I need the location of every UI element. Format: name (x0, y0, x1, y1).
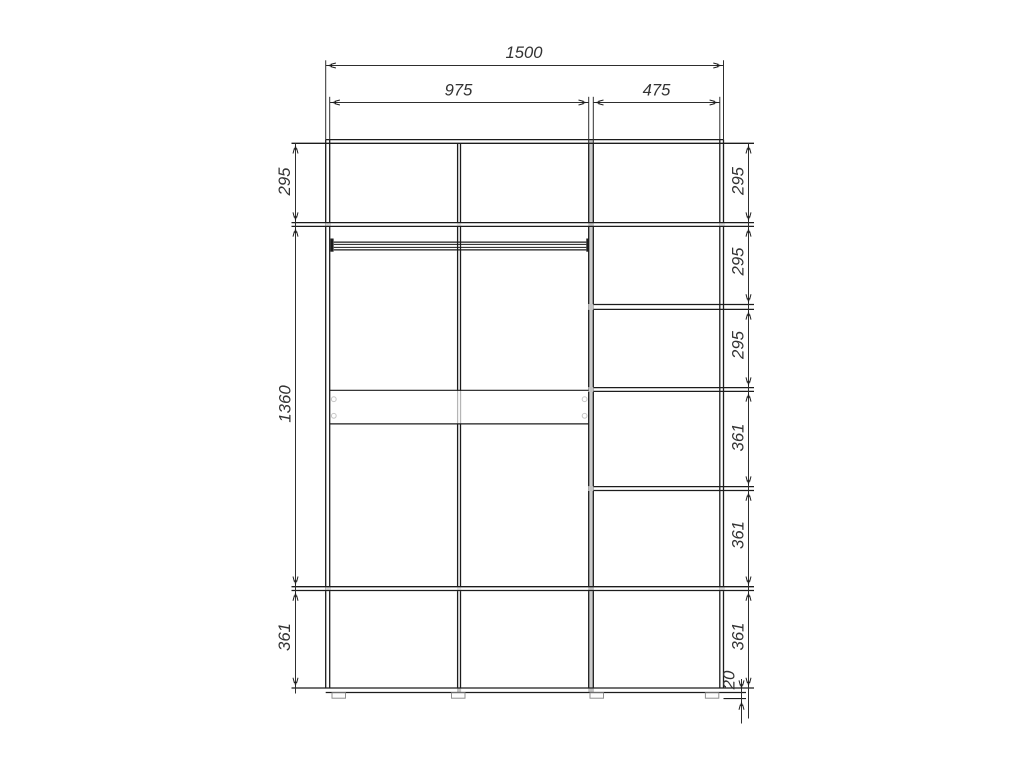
svg-text:361: 361 (275, 623, 294, 651)
svg-text:361: 361 (728, 424, 747, 452)
svg-text:20: 20 (720, 670, 739, 690)
svg-text:475: 475 (643, 80, 671, 99)
svg-text:295: 295 (275, 167, 294, 197)
svg-text:1500: 1500 (506, 43, 544, 62)
svg-text:1360: 1360 (276, 385, 295, 423)
svg-text:295: 295 (728, 330, 747, 360)
svg-text:295: 295 (728, 166, 747, 196)
svg-text:975: 975 (445, 80, 473, 99)
svg-text:295: 295 (728, 247, 747, 277)
svg-text:361: 361 (728, 521, 747, 549)
svg-text:361: 361 (728, 623, 747, 651)
